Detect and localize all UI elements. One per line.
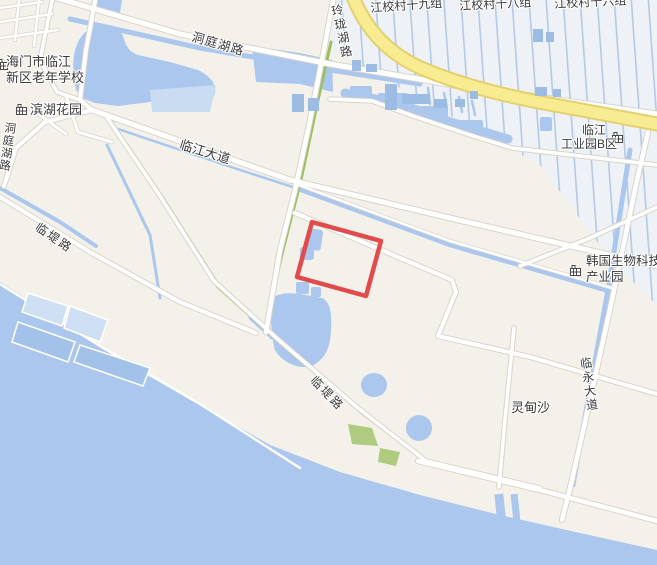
pond xyxy=(406,415,432,441)
label-korea-park-line2: 产业园 xyxy=(586,270,624,284)
label-korea-park-line1: 韩国生物科技 xyxy=(586,254,657,268)
label-school-line1: 海门市临江 xyxy=(6,55,71,70)
label-industrial-park-line1: 临江 xyxy=(582,124,606,138)
label-binhu-garden: 滨湖花园 xyxy=(30,103,82,118)
label-school-line2: 新区老年学校 xyxy=(6,71,84,86)
label-industrial-park-line2: 工业园B区 xyxy=(561,138,617,152)
pond xyxy=(361,373,387,397)
map-canvas[interactable]: 江校村十九组 江校村十八组 江校村十六组 玲珑湖路 洞庭湖路 海门市临江 新区老… xyxy=(0,0,657,565)
map-graphics xyxy=(0,0,657,565)
label-lingdiansha: 灵甸沙 xyxy=(511,401,550,416)
